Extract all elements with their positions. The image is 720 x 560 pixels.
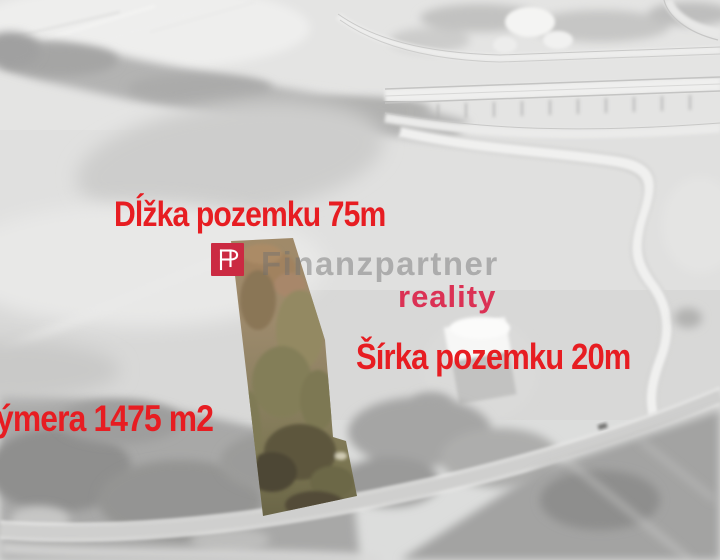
fp-monogram-icon: [211, 243, 244, 276]
finanzpartner-logo: [211, 243, 244, 276]
company-name-watermark: Finanzpartner: [261, 247, 499, 280]
plot-length-annotation: Dĺžka pozemku 75m: [114, 197, 385, 232]
plot-width-annotation: Šírka pozemku 20m: [356, 339, 630, 375]
division-label: reality: [398, 281, 496, 312]
plot-area-annotation: ýmera 1475 m2: [0, 400, 213, 437]
real-estate-aerial-image: Dĺžka pozemku 75m Šírka pozemku 20m ýmer…: [0, 0, 720, 560]
